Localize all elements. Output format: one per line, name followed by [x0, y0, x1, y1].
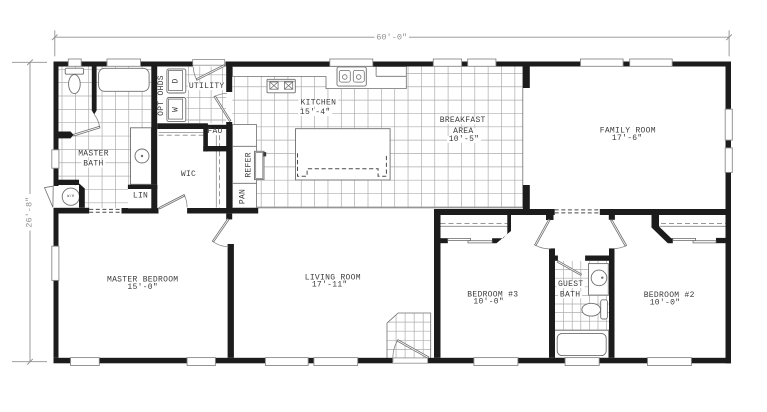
- svg-text:D: D: [172, 78, 181, 83]
- svg-text:17'-11": 17'-11": [312, 281, 348, 290]
- svg-text:UTILITY: UTILITY: [189, 82, 225, 91]
- svg-text:15'-0": 15'-0": [127, 283, 158, 292]
- svg-text:W/H: W/H: [67, 194, 74, 199]
- svg-text:KITCHEN: KITCHEN: [301, 99, 337, 108]
- svg-text:BATH: BATH: [560, 290, 580, 299]
- svg-text:LIN: LIN: [133, 192, 148, 201]
- svg-text:BREAKFAST: BREAKFAST: [440, 116, 486, 125]
- svg-text:WIC: WIC: [181, 170, 196, 179]
- svg-text:10'-0": 10'-0": [473, 298, 504, 307]
- svg-text:BATH: BATH: [83, 160, 103, 169]
- svg-text:W: W: [172, 107, 181, 112]
- svg-text:GUEST: GUEST: [558, 280, 584, 289]
- svg-text:26'-8": 26'-8": [25, 197, 35, 228]
- svg-text:10'-0": 10'-0": [650, 299, 681, 308]
- svg-text:MASTER: MASTER: [78, 149, 109, 158]
- svg-text:15'-4": 15'-4": [300, 108, 331, 117]
- svg-text:REFER: REFER: [244, 152, 253, 178]
- svg-text:OPT OHDS: OPT OHDS: [157, 75, 166, 116]
- svg-text:PAN: PAN: [238, 189, 247, 204]
- svg-text:10'-5": 10'-5": [449, 135, 480, 144]
- svg-text:FAU: FAU: [207, 127, 222, 136]
- svg-text:60'-0": 60'-0": [376, 32, 407, 42]
- svg-text:17'-6": 17'-6": [612, 134, 643, 143]
